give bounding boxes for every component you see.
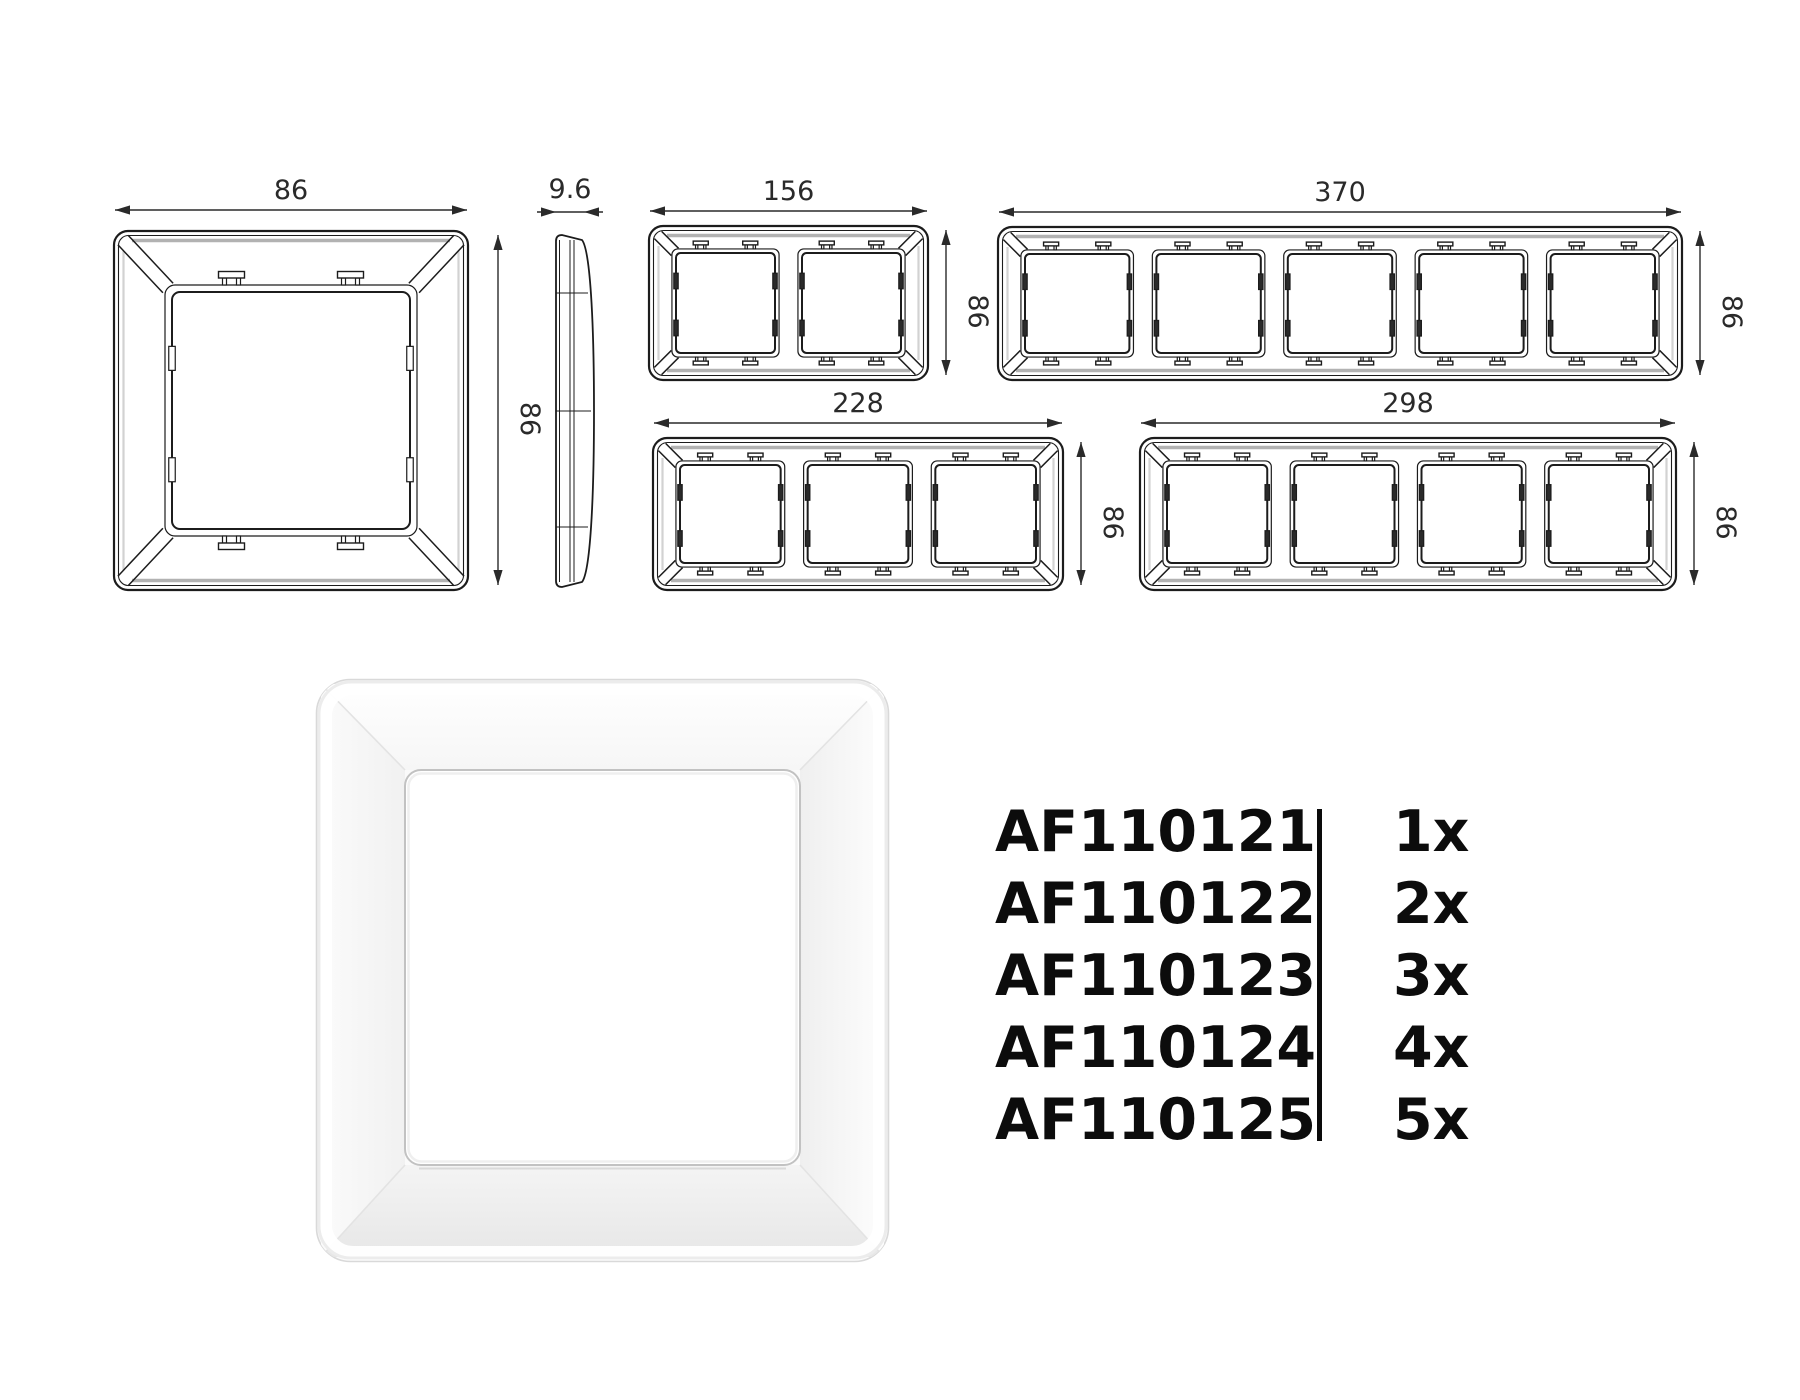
part-quantity: 5x [1323,1084,1469,1156]
dimension-label: 370 [1314,177,1366,208]
part-quantity: 3x [1323,940,1469,1012]
dimension-label: 156 [763,176,815,207]
drawing-front-4gang: 29886 [1140,388,1741,590]
table-divider [1317,809,1322,1141]
drawing-front-3gang: 22886 [653,388,1128,590]
part-quantity: 1x [1323,796,1469,868]
product-photo-render [315,678,890,1263]
product-datasheet: 86869.615686370862288629886 AF1101211xAF… [0,0,1800,1400]
dimension-label: 86 [962,294,993,328]
drawing-side-profile: 9.6 [537,174,603,587]
parts-table: AF1101211xAF1101222xAF1101233xAF1101244x… [995,796,1469,1156]
part-code: AF110125 [995,1084,1317,1156]
dimension-label: 298 [1382,388,1434,419]
dimension-label: 86 [1710,505,1741,539]
dimension-label: 9.6 [549,174,592,205]
part-quantity: 2x [1323,868,1469,940]
dimension-label: 86 [274,175,308,206]
part-code: AF110124 [995,1012,1317,1084]
part-code: AF110121 [995,796,1317,868]
drawing-front-5gang: 37086 [998,177,1747,380]
dimension-label: 86 [1716,295,1747,329]
frame-render [317,680,889,1262]
part-code: AF110123 [995,940,1317,1012]
dimension-label: 86 [514,402,545,436]
dimension-label: 86 [1097,505,1128,539]
part-code: AF110122 [995,868,1317,940]
drawing-front-1gang: 8686 [114,175,545,590]
part-quantity: 4x [1323,1012,1469,1084]
technical-drawings: 86869.615686370862288629886 [0,0,1800,640]
drawing-front-2gang: 15686 [649,176,993,380]
dimension-label: 228 [832,388,884,419]
